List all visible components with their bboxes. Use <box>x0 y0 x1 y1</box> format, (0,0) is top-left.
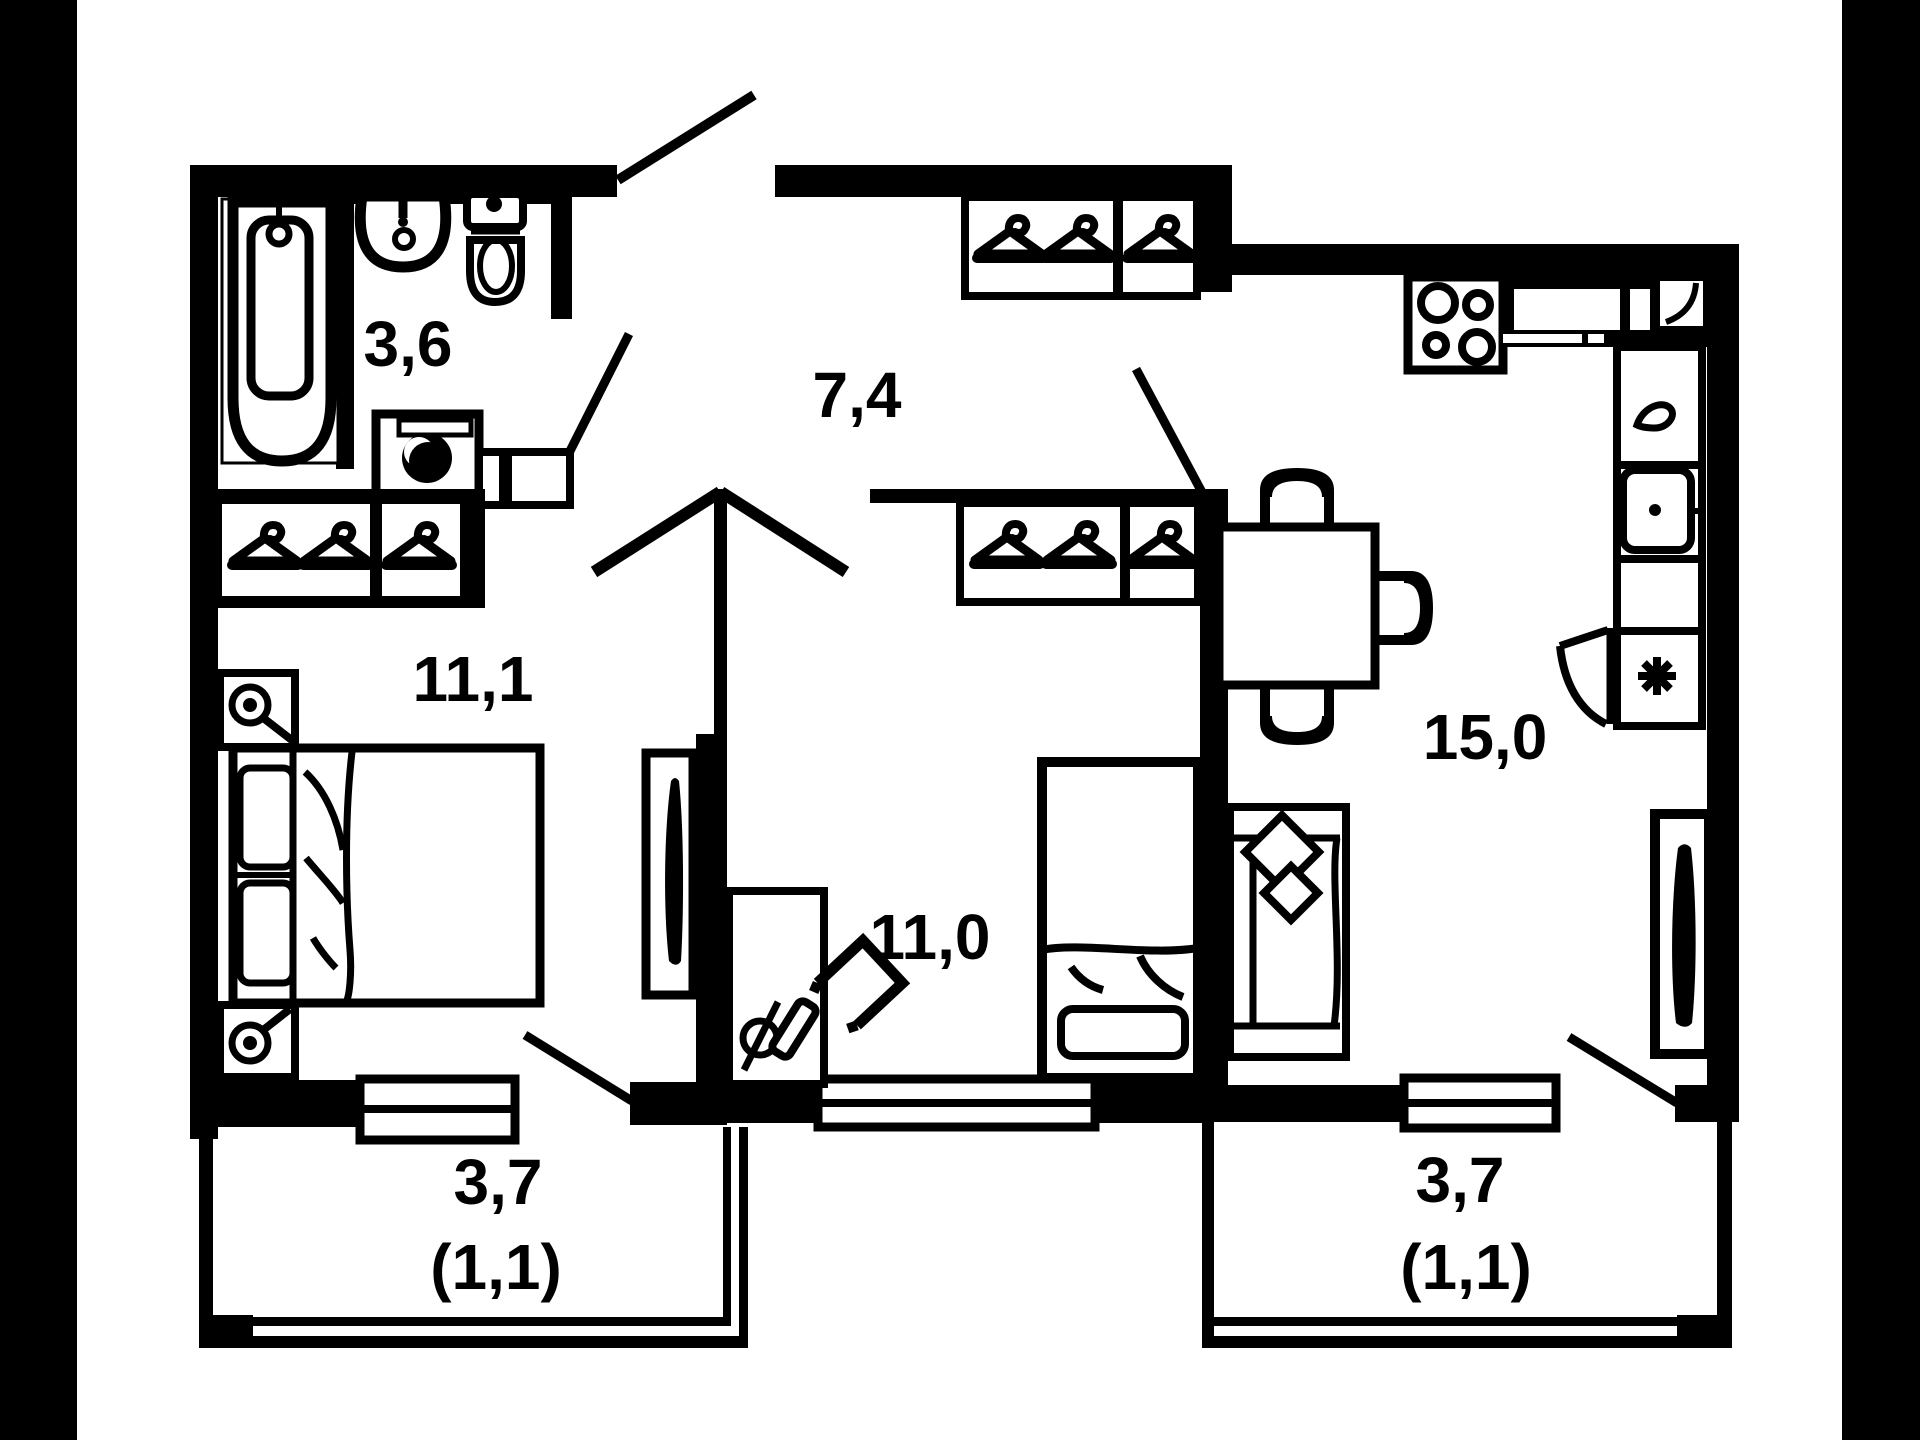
svg-text:11,0: 11,0 <box>869 901 990 973</box>
svg-text:3,7: 3,7 <box>1416 1144 1505 1216</box>
svg-text:3,7: 3,7 <box>454 1146 543 1218</box>
svg-text:3,6: 3,6 <box>364 308 453 380</box>
svg-text:(1,1): (1,1) <box>430 1231 562 1303</box>
svg-text:15,0: 15,0 <box>1423 701 1548 773</box>
svg-text:7,4: 7,4 <box>813 359 902 431</box>
svg-text:11,1: 11,1 <box>412 643 533 715</box>
svg-text:(1,1): (1,1) <box>1400 1231 1532 1303</box>
